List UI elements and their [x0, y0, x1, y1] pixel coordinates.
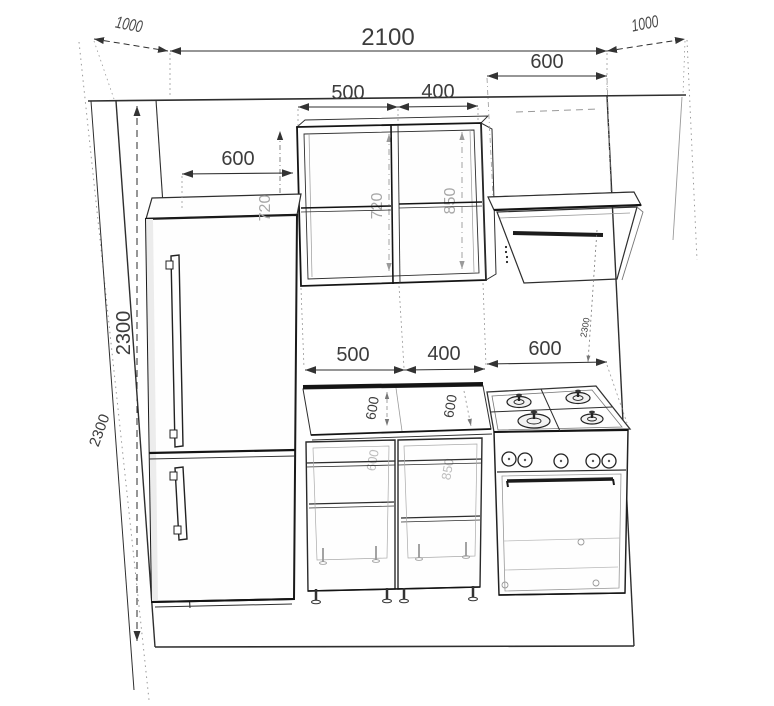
wall-cabinets: 720 850 — [297, 116, 496, 286]
range-hood — [488, 192, 643, 283]
hood-inner-line — [500, 213, 630, 218]
right-wall-outer-edge — [673, 97, 682, 240]
dim-line — [94, 39, 168, 51]
extension-line — [94, 41, 114, 99]
countertop-front-edge — [311, 429, 491, 435]
construction-dotted-right — [687, 40, 697, 260]
dim-base-left-width-label: 500 — [336, 344, 369, 366]
dim-line — [607, 39, 685, 51]
dim-wall-height-left-label: 2300 — [86, 412, 113, 449]
dim-hood-width-label: 600 — [530, 51, 563, 73]
dim-line — [487, 362, 607, 364]
hood-glass-strip — [513, 233, 603, 235]
dim-fridge-height-label: 2300 — [113, 311, 135, 356]
dim-side-depth-right: 1000 — [607, 13, 685, 95]
fridge-plinth — [155, 604, 292, 607]
countertop-joint — [396, 388, 402, 431]
wall-dashed-line — [516, 109, 599, 112]
refrigerator — [146, 194, 301, 607]
dim-base-right-width-label: 400 — [427, 343, 460, 365]
dim-line — [182, 173, 293, 174]
fridge-front — [146, 215, 297, 602]
dim-wall-cab-left-width-label: 500 — [331, 82, 364, 104]
dim-wall-cab-edge-height-label: 720 — [257, 195, 274, 222]
dim-counter-depth-right: 600 — [440, 391, 471, 426]
dim-base-right-width: 400 — [405, 343, 485, 370]
dim-counter-depth-left: 600 — [362, 392, 387, 426]
dim-side-depth-left-label: 1000 — [114, 14, 145, 37]
dim-base-left-width: 500 — [305, 344, 405, 370]
dim-stove-width-label: 600 — [528, 338, 561, 360]
hood-control-buttons — [505, 246, 508, 263]
kitchen-elevation-drawing: 720 850 2300 — [0, 0, 774, 706]
dim-side-depth-left: 1000 — [94, 14, 168, 99]
gas-stove — [487, 386, 630, 595]
dim-wall-height-right: 2300 — [578, 230, 597, 362]
dim-wall-cab-right-width-label: 400 — [421, 81, 454, 103]
left-wall-outer-edge — [91, 101, 134, 690]
dim-line — [464, 391, 471, 426]
extension-lines — [298, 109, 398, 126]
dim-hood-width: 600 — [487, 51, 611, 196]
dim-line — [398, 106, 478, 107]
construction-dotted-left — [79, 42, 149, 700]
floor-edge — [155, 646, 634, 647]
base-cabinets: 600 600 600 850 — [301, 283, 492, 604]
hood-side-edge — [622, 207, 643, 280]
oven-handle — [507, 479, 613, 481]
dim-wall-cab-right-height-label: 850 — [442, 188, 459, 215]
ceiling-line — [88, 95, 686, 101]
dim-fridge-width-label: 600 — [221, 148, 254, 170]
drawing-svg: 720 850 2300 — [0, 0, 774, 706]
extension-line — [683, 41, 685, 95]
dim-counter-depth-left-label: 600 — [362, 395, 382, 421]
dim-line — [588, 230, 597, 362]
dim-line — [405, 369, 485, 370]
dim-counter-depth-right-label: 600 — [440, 393, 460, 419]
dim-room-width-label: 2100 — [361, 24, 414, 51]
dim-side-depth-right-label: 1000 — [630, 13, 661, 36]
